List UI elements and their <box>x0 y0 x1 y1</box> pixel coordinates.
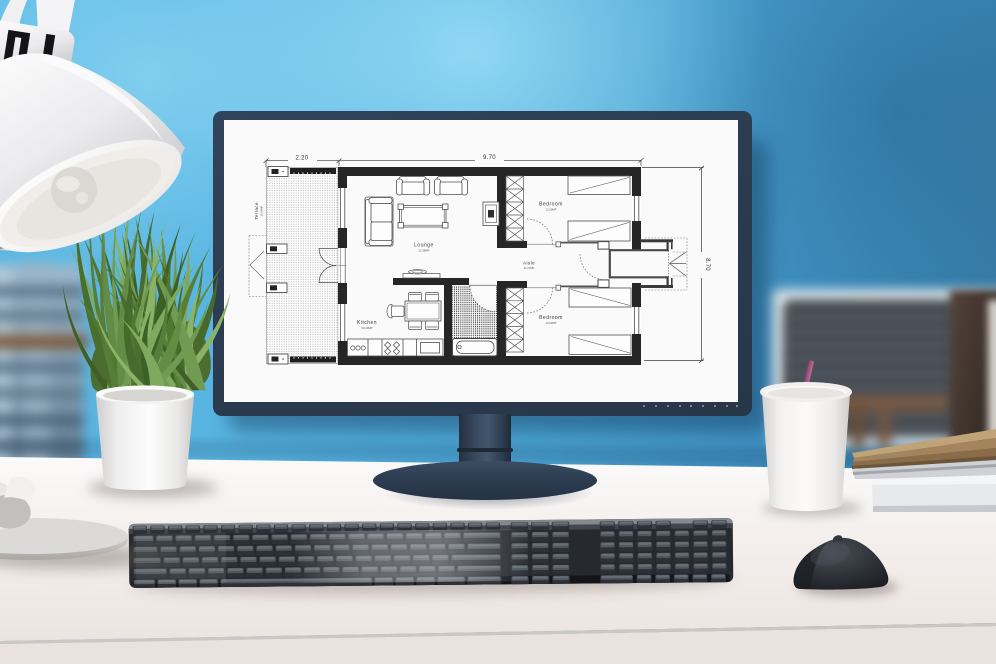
svg-text:Kitchen: Kitchen <box>357 320 377 326</box>
svg-text:Bedroom: Bedroom <box>539 202 563 208</box>
svg-text:22.58MP: 22.58MP <box>419 249 430 253</box>
svg-text:09.30MP: 09.30MP <box>362 326 373 330</box>
svg-text:2.20: 2.20 <box>296 156 309 162</box>
svg-text:8.70: 8.70 <box>704 258 710 271</box>
svg-text:Lounge: Lounge <box>414 243 434 249</box>
svg-text:11.27MP: 11.27MP <box>524 266 535 270</box>
svg-text:12.00MP: 12.00MP <box>546 208 557 212</box>
svg-text:12.00MP: 12.00MP <box>546 321 557 325</box>
svg-text:Bedroom: Bedroom <box>539 315 563 321</box>
svg-text:Aisle: Aisle <box>523 261 535 266</box>
svg-text:9.70: 9.70 <box>483 155 496 161</box>
